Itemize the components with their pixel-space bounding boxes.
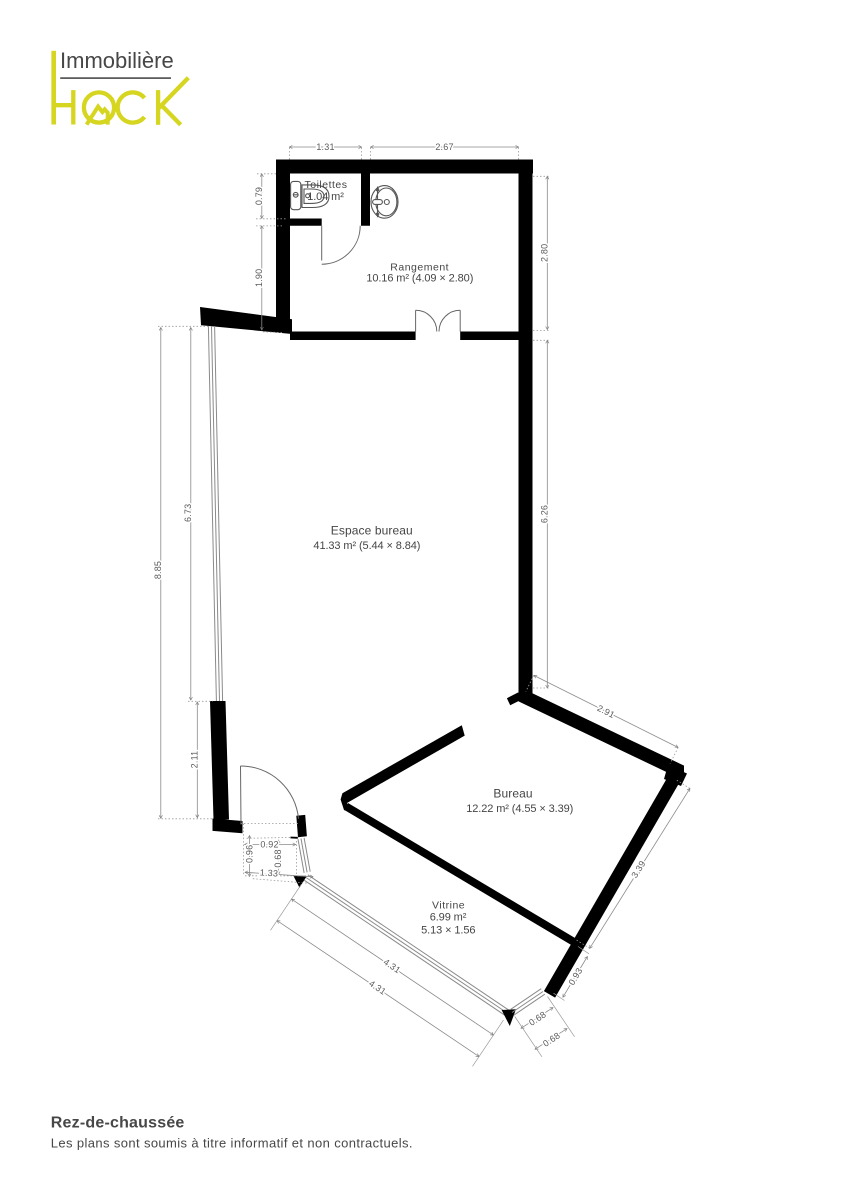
svg-text:1.04 m²: 1.04 m² [307,191,344,203]
svg-text:Les plans sont soumis à titre: Les plans sont soumis à titre informatif… [51,1136,413,1151]
svg-text:6.26: 6.26 [539,505,549,523]
svg-text:Toilettes: Toilettes [304,179,347,191]
svg-text:41.33 m² (5.44 × 8.84): 41.33 m² (5.44 × 8.84) [313,540,420,552]
svg-text:0.79: 0.79 [254,187,264,205]
svg-text:10.16 m² (4.09 × 2.80): 10.16 m² (4.09 × 2.80) [366,272,473,284]
svg-text:Espace bureau: Espace bureau [331,524,413,538]
svg-text:0.92: 0.92 [260,839,278,849]
svg-text:Vitrine: Vitrine [432,899,465,911]
svg-text:1.33: 1.33 [260,867,279,878]
svg-text:1.90: 1.90 [254,269,264,287]
svg-text:6.99 m²: 6.99 m² [430,912,467,924]
svg-text:Immobilière: Immobilière [60,48,174,73]
svg-text:5.13 × 1.56: 5.13 × 1.56 [421,924,475,936]
svg-text:0.68: 0.68 [273,849,283,867]
svg-text:Rez-de-chaussée: Rez-de-chaussée [51,1115,185,1132]
svg-text:1.31: 1.31 [316,142,334,152]
svg-text:2.67: 2.67 [435,142,453,152]
svg-text:6.73: 6.73 [183,504,193,522]
svg-text:2.80: 2.80 [539,244,549,262]
svg-text:Bureau: Bureau [493,787,532,801]
svg-text:2.11: 2.11 [189,751,199,769]
svg-text:0.96: 0.96 [245,845,255,863]
svg-text:8.85: 8.85 [153,561,163,579]
svg-text:12.22 m² (4.55 × 3.39): 12.22 m² (4.55 × 3.39) [466,803,573,815]
